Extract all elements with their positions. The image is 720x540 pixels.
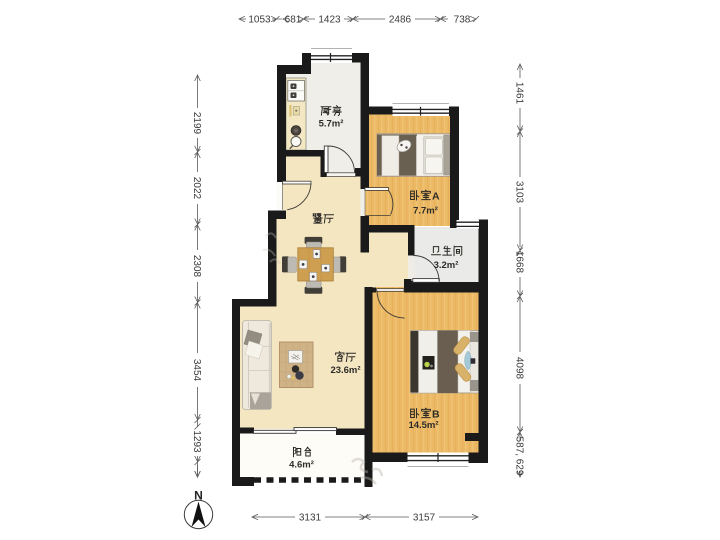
svg-text:3131: 3131 (299, 513, 322, 524)
svg-text:4098: 4098 (514, 357, 525, 380)
svg-text:738: 738 (454, 15, 471, 26)
svg-text:A: A (432, 191, 440, 203)
svg-text:3454: 3454 (191, 359, 202, 382)
svg-text:7.7m²: 7.7m² (413, 205, 438, 216)
svg-text:1423: 1423 (318, 15, 341, 26)
svg-text:3103: 3103 (514, 181, 525, 204)
svg-text:1053: 1053 (248, 15, 271, 26)
svg-text:2486: 2486 (389, 15, 412, 26)
svg-text:2308: 2308 (191, 255, 202, 278)
svg-text:5.7m²: 5.7m² (319, 118, 344, 129)
svg-text:2022: 2022 (191, 177, 202, 200)
svg-text:3.2m²: 3.2m² (434, 260, 459, 271)
svg-text:3157: 3157 (413, 513, 436, 524)
svg-text:587, 629: 587, 629 (514, 437, 525, 476)
svg-text:23.6m²: 23.6m² (330, 365, 360, 376)
svg-text:14.5m²: 14.5m² (408, 420, 438, 431)
svg-text:B: B (432, 409, 440, 421)
svg-text:2199: 2199 (191, 112, 202, 135)
svg-text:1293: 1293 (191, 430, 202, 453)
svg-text:1461: 1461 (514, 82, 525, 105)
svg-text:4.6m²: 4.6m² (289, 459, 314, 470)
svg-text:681: 681 (285, 15, 302, 26)
svg-text:1668: 1668 (514, 251, 525, 274)
